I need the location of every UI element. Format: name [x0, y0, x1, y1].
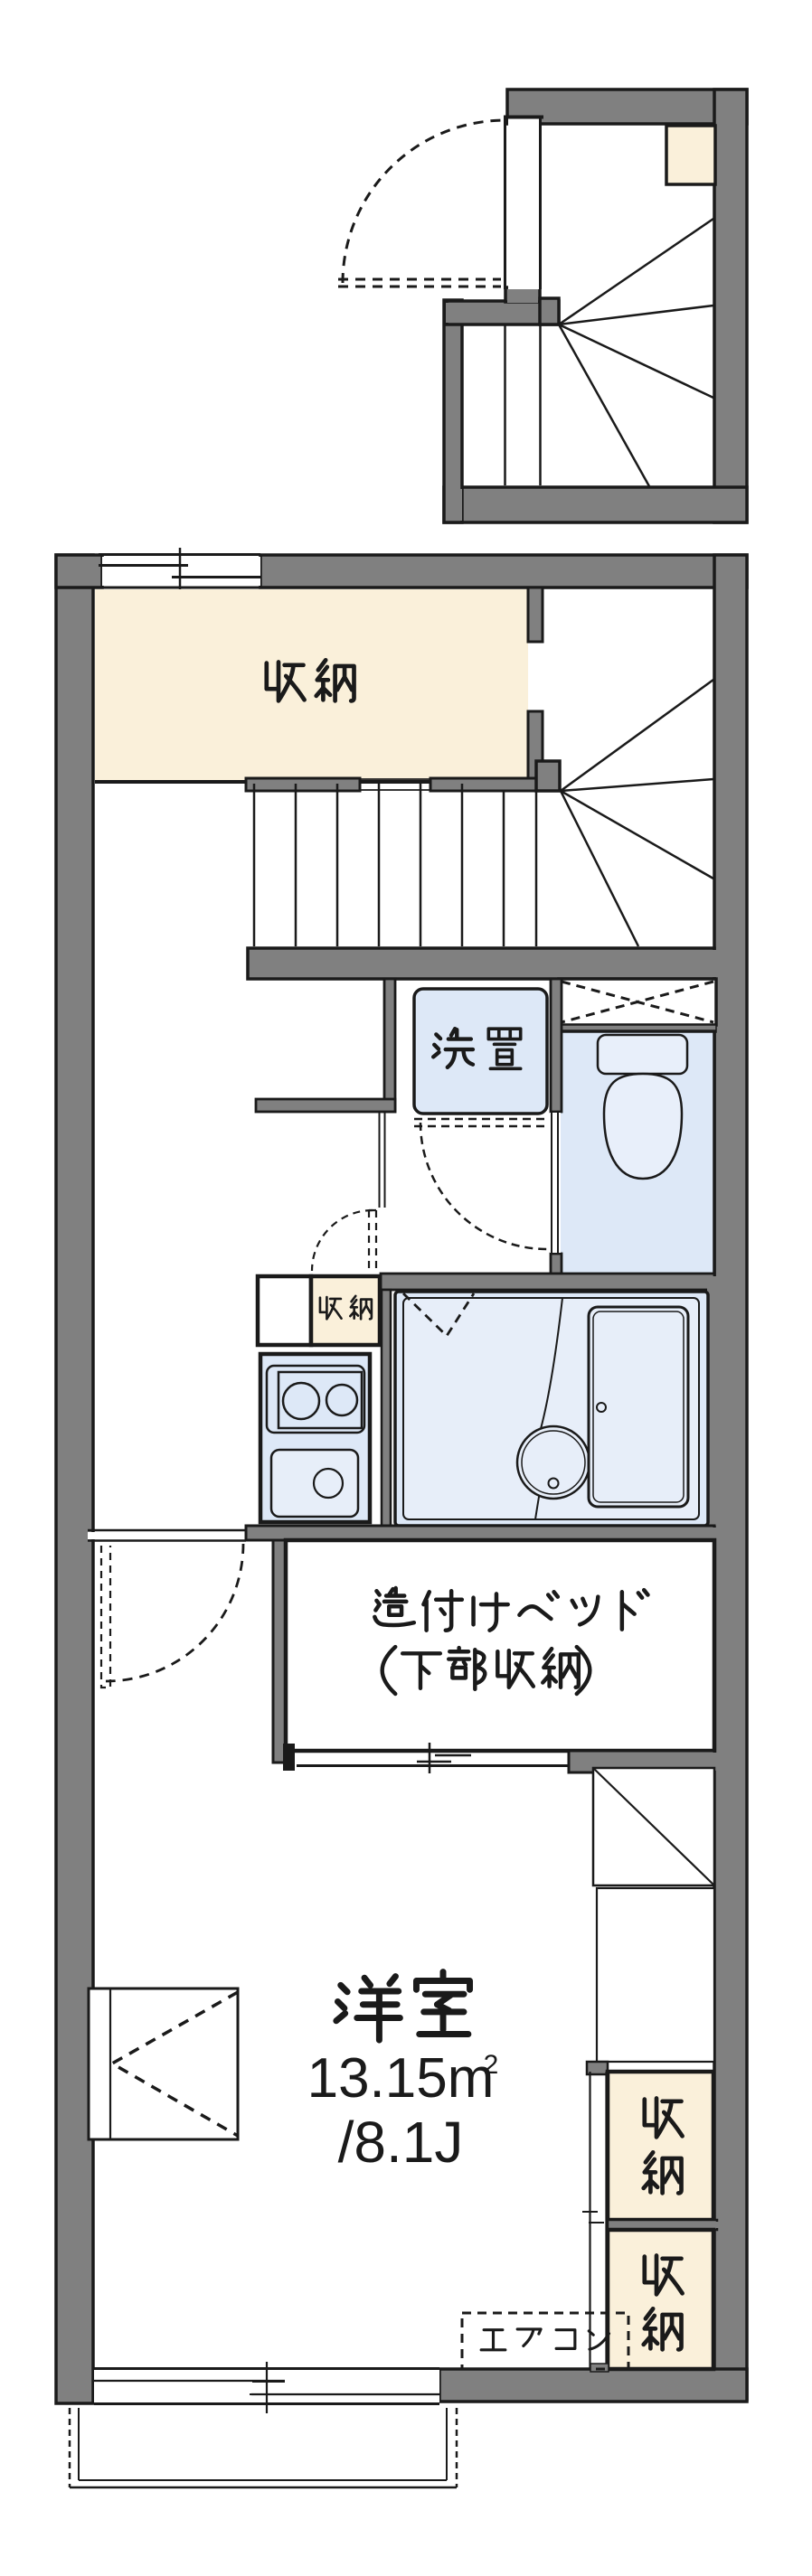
svg-text:13.15m: 13.15m [307, 2047, 495, 2110]
svg-text:/8.1J: /8.1J [338, 2110, 464, 2175]
svg-text:2: 2 [484, 2050, 499, 2080]
